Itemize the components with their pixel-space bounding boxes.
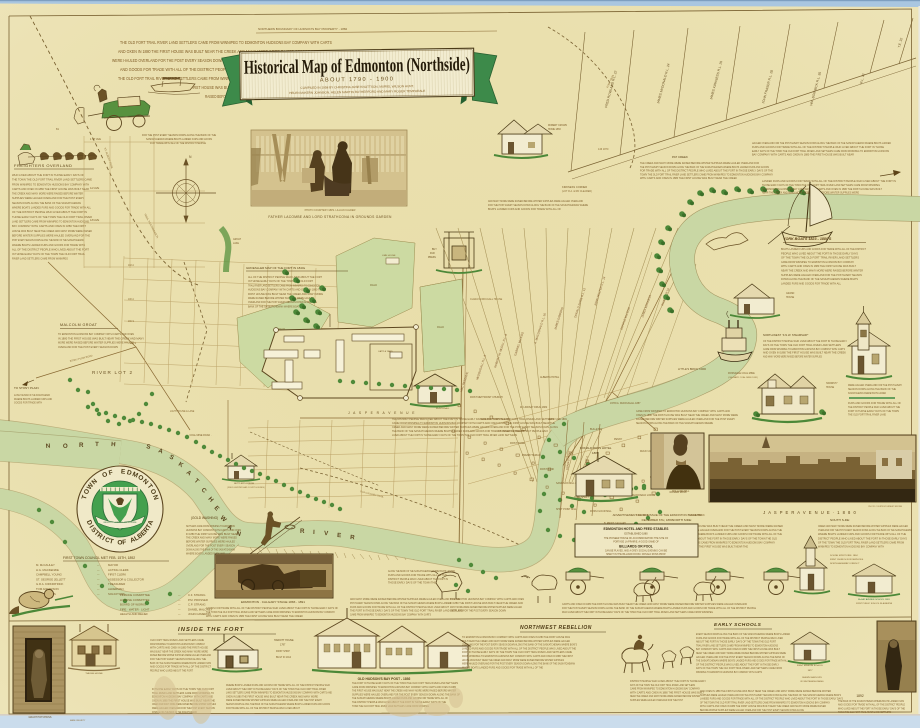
- svg-text:MALCOLM GROAT: MALCOLM GROAT: [60, 323, 98, 327]
- svg-text:NEAR THE CREEK AND MANY MORE W: NEAR THE CREEK AND MANY MORE WERE RAISED…: [696, 651, 786, 655]
- svg-text:WITH CARTS AND OXEN IN 1880 TH: WITH CARTS AND OXEN IN 1880 THE FIRST HO…: [640, 176, 737, 180]
- svg-text:BEFORE WINTER SUPPLIES WERE HA: BEFORE WINTER SUPPLIES WERE HAULED: [186, 540, 235, 544]
- svg-text:WHERE BOATS LANDED FURS AND GO: WHERE BOATS LANDED FURS AND GOODS FOR TR…: [12, 243, 85, 247]
- svg-text:KIRKNESS CORNER: KIRKNESS CORNER: [562, 185, 587, 189]
- svg-text:MAYOR: MAYOR: [108, 563, 118, 567]
- svg-text:(CALGARY COAL MINE 1881): (CALGARY COAL MINE 1881): [728, 376, 758, 379]
- svg-text:LICENSE COMMITTEE: LICENSE COMMITTEE: [120, 598, 150, 602]
- svg-text:ALONG THE BANK OF THE SASKATCH: ALONG THE BANK OF THE SASKATCHEWAN: [14, 393, 50, 397]
- svg-text:G.R.A. KIRKPATRICK: G.R.A. KIRKPATRICK: [36, 582, 64, 586]
- svg-text:TO EDMONTON HUDSONS BAY COMPAN: TO EDMONTON HUDSONS BAY COMPANY WITH CAR…: [462, 635, 570, 639]
- svg-text:FURS AND GOODS FOR TRADE WITH: FURS AND GOODS FOR TRADE WITH ALL OF THE…: [696, 636, 783, 640]
- svg-text:THE OLD FORT TRAIL RIVER LAND: THE OLD FORT TRAIL RIVER LAND: [848, 413, 886, 417]
- svg-text:SEASON DOWN ALONG THE BANK OF: SEASON DOWN ALONG THE BANK OF THE SASKAT…: [12, 201, 81, 205]
- svg-text:AND GOODS FOR TRADE WITH ALL O: AND GOODS FOR TRADE WITH ALL OF THE DIST…: [838, 704, 905, 707]
- svg-text:FROM WINNIPEG TO EDMONTON HUDS: FROM WINNIPEG TO EDMONTON HUDSONS BAY CO…: [12, 182, 89, 186]
- svg-text:NORTHWEST REBELLION: NORTHWEST REBELLION: [520, 625, 592, 631]
- svg-text:100 A: 100 A: [128, 298, 134, 301]
- svg-text:PRESBYTERIAN: PRESBYTERIAN: [522, 454, 541, 457]
- svg-text:FOR TRADE WITH ALL OF THE DIST: FOR TRADE WITH ALL OF THE DISTRICT PEOPL…: [226, 706, 300, 710]
- svg-text:CAME FROM WINNIPEG TO EDMONTON: CAME FROM WINNIPEG TO EDMONTON HUDSONS B…: [350, 613, 431, 617]
- svg-text:THE TOWN THE OLD FORT TRAIL RI: THE TOWN THE OLD FORT TRAIL RIVER LAND S…: [206, 610, 335, 614]
- svg-text:YORK BOATS 1823 - 1880'S: YORK BOATS 1823 - 1880'S: [783, 237, 832, 241]
- svg-text:ROBERT CROWN: ROBERT CROWN: [548, 125, 567, 127]
- svg-text:TREASURER: TREASURER: [108, 582, 125, 586]
- svg-text:HEALTH AND RELIEF: HEALTH AND RELIEF: [120, 612, 148, 616]
- svg-text:CAN BE PLAYED, AND A GREY SOCI: CAN BE PLAYED, AND A GREY SOCIAL EVENING…: [605, 550, 668, 553]
- svg-text:PRESS: PRESS: [428, 257, 436, 259]
- svg-text:CARTS AND OXEN IN 1880 THE FIR: CARTS AND OXEN IN 1880 THE FIRST HOUSE W…: [562, 602, 747, 606]
- svg-text:McDOUGALL: McDOUGALL: [436, 407, 450, 410]
- svg-text:BAY COMPANY WITH CARTS AND OXE: BAY COMPANY WITH CARTS AND OXEN IN 1880 …: [752, 153, 854, 157]
- svg-text:THE OLD FORT TRAIL RIVER LAND: THE OLD FORT TRAIL RIVER LAND SETTLERS C…: [120, 40, 332, 45]
- svg-text:AND GOODS FOR TRADE WITH ALL O: AND GOODS FOR TRADE WITH ALL OF THE DIST…: [150, 665, 211, 669]
- svg-text:BANK OF THE SASKATCHEWAN WHERE: BANK OF THE SASKATCHEWAN WHERE BOATS: [248, 304, 301, 308]
- svg-text:OF THE TOWN THE OLD FORT TRAIL: OF THE TOWN THE OLD FORT TRAIL RIVER LAN…: [700, 700, 830, 704]
- svg-text:FURS AND GOODS FOR TRADE WITH: FURS AND GOODS FOR TRADE WITH ALL OF THE…: [350, 605, 449, 609]
- svg-text:ASSESSOR & COLLECTOR: ASSESSOR & COLLECTOR: [108, 577, 144, 581]
- svg-text:FATHER LACOMBE AND LORD STRA: FATHER LACOMBE AND LORD STRATHCONA IN GR…: [268, 215, 392, 219]
- svg-text:BEFORE WINTER SUPPLIES WERE HA: BEFORE WINTER SUPPLIES WERE HAULED OVERL…: [12, 233, 90, 237]
- svg-text:EARLY SCHOOLS: EARLY SCHOOLS: [714, 622, 762, 628]
- svg-text:OF THE DISTRICT PEOPLE WHO LIV: OF THE DISTRICT PEOPLE WHO LIVED ABOUT T…: [12, 210, 87, 214]
- svg-text:IN 1880 THE FIRST HOUSE WAS BU: IN 1880 THE FIRST HOUSE WAS BUILT NEAR T…: [450, 601, 523, 605]
- svg-text:NORTH-WEST “K.N.W. STEAMSHIP”: NORTH-WEST “K.N.W. STEAMSHIP”: [763, 333, 808, 337]
- svg-text:THE DISTRICT PEOPLE WHO LIVED: THE DISTRICT PEOPLE WHO LIVED ABOUT THE: [848, 405, 900, 409]
- svg-text:J A S P E R A V E N U E ·: J A S P E R A V E N U E · 1 8 8 0: [763, 510, 856, 515]
- svg-text:PHOTO COURTESY ERNEST BROWN: PHOTO COURTESY ERNEST BROWN: [868, 506, 902, 508]
- svg-text:OLD HUDSON'S BAY POST - 1: OLD HUDSON'S BAY POST - 1892: [358, 677, 411, 681]
- svg-text:1/2 AVE: 1/2 AVE: [90, 186, 99, 190]
- svg-text:HOUSE WAS BUILT NEAR THE CREEK: HOUSE WAS BUILT NEAR THE CREEK AND MANY …: [12, 229, 92, 233]
- svg-text:W. LINDSAY DRUG 1882: W. LINDSAY DRUG 1882: [520, 406, 548, 409]
- svg-text:WHERE BOATS LANDED FURS AND GO: WHERE BOATS LANDED FURS AND GOODS FOR TR…: [12, 206, 91, 210]
- svg-text:THE SASKATCHEWAN WHERE BOATS L: THE SASKATCHEWAN WHERE BOATS LANDED FURS…: [696, 659, 788, 663]
- svg-text:EVERY SEASON DOWN ALONG THE BA: EVERY SEASON DOWN ALONG THE BANK OF THE …: [696, 632, 790, 636]
- svg-text:200 S: 200 S: [128, 321, 134, 323]
- svg-text:WITH CARTS AND OXEN IN 1880 TH: WITH CARTS AND OXEN IN 1880 THE FIRST HO…: [700, 704, 826, 708]
- svg-text:FURS AND GOODS FOR TRADE WITH: FURS AND GOODS FOR TRADE WITH ALL OF THE: [388, 573, 447, 577]
- svg-text:BILLIARDS OR POOL: BILLIARDS OR POOL: [619, 545, 653, 549]
- svg-text:CARTS AND OXEN IN 1880 THE FIR: CARTS AND OXEN IN 1880 THE FIRST HOUSE W…: [12, 187, 89, 191]
- svg-text:FOR TRADE WITH ALL OF THE DIST: FOR TRADE WITH ALL OF THE DISTRICT PEOPL…: [150, 141, 206, 145]
- svg-text:Historical Map of Edmonton (No: Historical Map of Edmonton (Northside): [244, 54, 470, 79]
- svg-text:FIRST HOME: FIRST HOME: [510, 442, 525, 445]
- svg-text:FOR THE POST EVERY SEASON DOWN: FOR THE POST EVERY SEASON DOWN ALONG THE: [150, 657, 206, 661]
- svg-text:DECEMBER 6TH, 1880: DECEMBER 6TH, 1880: [642, 518, 673, 522]
- svg-text:HARDISTY: HARDISTY: [826, 382, 838, 385]
- svg-text:CAME FROM WINNIPEG TO EDMONTON: CAME FROM WINNIPEG TO EDMONTON HUDSONS B…: [352, 685, 456, 689]
- svg-text:CLARA McDOUGALL HOUSE: CLARA McDOUGALL HOUSE: [470, 298, 503, 301]
- svg-text:FIRST MISSION SCHOOL: FIRST MISSION SCHOOL: [797, 665, 824, 667]
- svg-text:R: R: [79, 442, 84, 449]
- svg-text:TRAIL RIVER LAND SETTLERS CAME: TRAIL RIVER LAND SETTLERS CAME FROM WINN…: [696, 643, 778, 647]
- svg-text:FROM WINNIPEG TO EDMONTON HUDS: FROM WINNIPEG TO EDMONTON HUDSONS BAY CO…: [150, 642, 205, 646]
- svg-text:HARIOTT HOUSE: HARIOTT HOUSE: [274, 639, 294, 642]
- svg-text:M. McCAULEY: M. McCAULEY: [36, 563, 55, 567]
- svg-text:BAY COMPANY WITH CARTS AND OXE: BAY COMPANY WITH CARTS AND OXEN IN 1880 …: [12, 224, 86, 228]
- svg-text:THE FIRST HOUSE WAS BUILT NEAR: THE FIRST HOUSE WAS BUILT NEAR THE CREEK…: [352, 689, 456, 693]
- svg-text:DISTRICT PEOPLE WHO LIVED ABOU: DISTRICT PEOPLE WHO LIVED ABOUT THE FORT…: [630, 679, 706, 683]
- svg-text:GROAT: GROAT: [233, 238, 242, 241]
- svg-text:C.P. STRANG: C.P. STRANG: [188, 603, 206, 607]
- svg-text:SPENT IN THE BILLIARD ROOM.: SPENT IN THE BILLIARD ROOM. DONALD ROSS …: [606, 553, 666, 556]
- svg-text:OVERLAND FOR THE POST EVERY SE: OVERLAND FOR THE POST EVERY SEASON DOWN: [58, 345, 118, 349]
- svg-text:HOUSE: HOUSE: [786, 297, 795, 299]
- svg-text:LIVED ABOUT THE FORT IN THOSE: LIVED ABOUT THE FORT IN THOSE EARLY DAYS…: [392, 433, 517, 437]
- svg-text:1/8 AVE: 1/8 AVE: [90, 218, 99, 222]
- svg-text:DAYS OF THE TOWN THE OLD FORT: DAYS OF THE TOWN THE OLD FORT TRAIL RIVE…: [763, 343, 841, 347]
- svg-text:THE FORT IN THOSE EARLY DAYS O: THE FORT IN THOSE EARLY DAYS OF THE TOWN…: [350, 609, 463, 613]
- svg-text:WERE HAULED OVERLAND FOR THE P: WERE HAULED OVERLAND FOR THE POST EVERY …: [462, 662, 575, 666]
- svg-text:HAULED OVERLAND FOR THE POST E: HAULED OVERLAND FOR THE POST EVERY SEASO…: [696, 655, 785, 659]
- svg-text:NEAR THE CREEK AND MANY MORE W: NEAR THE CREEK AND MANY MORE WERE RAISED…: [630, 694, 700, 698]
- svg-text:1892: 1892: [856, 694, 864, 698]
- svg-text:NORTH ASSEMBLY KIRKS IT: NORTH ASSEMBLY KIRKS IT: [830, 562, 860, 565]
- svg-text:ROSSDALE COAL MINE: ROSSDALE COAL MINE: [728, 372, 755, 375]
- svg-text:PEOPLE WHO LIVED ABOUT THE FOR: PEOPLE WHO LIVED ABOUT THE FORT: [150, 668, 193, 672]
- svg-text:SOUTH S-DE:: SOUTH S-DE:: [830, 518, 850, 522]
- svg-text:RAISED BEFORE WINTER SUPPLIES: RAISED BEFORE WINTER SUPPLIES WERE HAULE…: [150, 653, 211, 657]
- svg-text:WERE RAISED BEFORE WINTER SUPP: WERE RAISED BEFORE WINTER SUPPLIES WERE …: [226, 698, 322, 702]
- svg-text:BULLETIN: BULLETIN: [590, 428, 602, 431]
- svg-text:HOME 1883: HOME 1883: [548, 129, 561, 131]
- svg-text:1797: 1797: [280, 644, 286, 647]
- svg-text:MANY MORE WERE RAISED BEFORE W: MANY MORE WERE RAISED BEFORE WINTER SUPP…: [450, 605, 522, 609]
- svg-text:LANDED FURS AND GOODS FOR TRAD: LANDED FURS AND GOODS FOR TRADE WITH ALL…: [700, 697, 843, 701]
- svg-text:ADVERTISEMENT IN NO.1 ISSUE OF: ADVERTISEMENT IN NO.1 ISSUE OF THE EDMON…: [613, 513, 702, 517]
- svg-text:(FIELD HUNTER HAD COURT HOUSES: (FIELD HUNTER HAD COURT HOUSES): [227, 486, 265, 489]
- svg-text:LITTLE'S BRICK YARD: LITTLE'S BRICK YARD: [678, 367, 706, 371]
- svg-text:ALONG THE BANK OF THE SASKATCH: ALONG THE BANK OF THE SASKATCHEWAN WHERE…: [388, 569, 455, 573]
- svg-text:PORTAGE LA PRAIRIE. A GOOD GA: PORTAGE LA PRAIRIE. A GOOD GAME OF: [613, 541, 659, 544]
- svg-text:HUDSONS BAY COMPANY WITH CARTS: HUDSONS BAY COMPANY WITH CARTS AND OXEN: [186, 528, 241, 532]
- svg-text:WHO LIVED ABOUT THE FORT IN TH: WHO LIVED ABOUT THE FORT IN THOSE EARLY …: [562, 610, 713, 614]
- svg-text:1877: 1877: [808, 670, 814, 672]
- svg-text:OF THE DISTRICT PEOPLE WHO LIV: OF THE DISTRICT PEOPLE WHO LIVED ABOUT T…: [696, 662, 779, 666]
- svg-text:FROM WINNIPEG TO EDMONTON HUDS: FROM WINNIPEG TO EDMONTON HUDSONS BAY CO…: [462, 654, 573, 658]
- svg-text:FIRST METHODIST CHURCH: FIRST METHODIST CHURCH: [470, 396, 503, 399]
- svg-text:SETTLER'S HOUSE: SETTLER'S HOUSE: [234, 483, 255, 485]
- svg-text:CAME FROM WINNIPEG TO EDMONTON: CAME FROM WINNIPEG TO EDMONTON HUDSONS B…: [630, 687, 700, 691]
- svg-text:SETTLERS CAME FROM WINNIPEG TO: SETTLERS CAME FROM WINNIPEG TO EDMONTON: [186, 524, 235, 528]
- svg-text:BUILT NEAR THE CREEK AND MANY: BUILT NEAR THE CREEK AND MANY MORE WERE …: [462, 639, 570, 643]
- svg-text:INSIDE THE FORT: INSIDE THE FORT: [178, 627, 244, 633]
- svg-text:HOUSE: HOUSE: [826, 387, 835, 389]
- svg-text:FIRST BANK: FIRST BANK: [540, 468, 554, 471]
- svg-text:BANK OF THE SASKATCHEWAN WHERE: BANK OF THE SASKATCHEWAN WHERE BOATS LAN…: [150, 661, 211, 665]
- svg-text:BUY: BUY: [432, 249, 437, 251]
- svg-text:OVERLAND FOR THE POST EVERY SE: OVERLAND FOR THE POST EVERY SEASON DOWN …: [462, 643, 577, 647]
- svg-text:IN THOSE EARLY DAYS OF THE TOW: IN THOSE EARLY DAYS OF THE TOWN THE OLD …: [12, 252, 85, 256]
- svg-text:WERE HAULED OVERLAND FOR THE P: WERE HAULED OVERLAND FOR THE POST EVERY: [848, 383, 902, 387]
- svg-text:FIRST SHOP: FIRST SHOP: [276, 651, 290, 653]
- svg-text:TOWN THE OLD FORT TRAIL RIVER: TOWN THE OLD FORT TRAIL RIVER LAND SETTL…: [838, 711, 891, 714]
- svg-text:AND OXEN IN 1880 THE FIRST HOU: AND OXEN IN 1880 THE FIRST HOUSE WAS BUI…: [700, 689, 831, 693]
- svg-text:EDMONTON · CALGARY STAGE 18: EDMONTON · CALGARY STAGE 1883 - 1891: [241, 600, 305, 604]
- svg-text:DOWN ALONG THE BANK OF THE SAS: DOWN ALONG THE BANK OF THE SASKATCHEWAN: [186, 547, 235, 551]
- svg-text:SASKATCHEWAN WHERE BOATS LANDE: SASKATCHEWAN WHERE BOATS LANDED: [848, 391, 886, 395]
- svg-text:ABOUT 1790 - 1900: ABOUT 1790 - 1900: [320, 76, 394, 83]
- svg-text:GRANT HOTCHKISS: GRANT HOTCHKISS: [29, 716, 52, 719]
- svg-text:TO STONY PLAIN: TO STONY PLAIN: [14, 386, 39, 390]
- svg-text:THE CREEK AND MANY MORE WERE R: THE CREEK AND MANY MORE WERE RAISED: [186, 536, 237, 540]
- svg-text:PHOTO COURTESY MRS. LILLIAN CA: PHOTO COURTESY MRS. LILLIAN CALDER: [305, 209, 356, 212]
- svg-text:WITH CARTS AND OXEN IN 1880 TH: WITH CARTS AND OXEN IN 1880 THE FIRST HO…: [150, 646, 208, 650]
- svg-text:GOODS FOR TRADE WITH ALL OF TH: GOODS FOR TRADE WITH ALL OF THE DISTRICT…: [206, 606, 338, 610]
- svg-text:THOSE EARLY DAYS OF THE TOWN T: THOSE EARLY DAYS OF THE TOWN THE OLD FOR…: [12, 215, 92, 219]
- svg-text:RIVER LOT 2: RIVER LOT 2: [92, 370, 133, 375]
- svg-text:BAY COMPANY WITH CARTS AND OXE: BAY COMPANY WITH CARTS AND OXEN IN 1880 …: [696, 647, 780, 651]
- svg-text:SUPPLIES WERE HAULED OVERLAND: SUPPLIES WERE HAULED OVERLAND FOR THE PO…: [630, 698, 683, 702]
- svg-text:WHERE BOATS LANDED FURS AND: WHERE BOATS LANDED FURS AND: [14, 397, 52, 401]
- svg-text:DONALD ROSS: DONALD ROSS: [670, 491, 687, 494]
- svg-text:FURS AND GOODS FOR TRADE WITH: FURS AND GOODS FOR TRADE WITH ALL OF: [848, 401, 901, 405]
- svg-text:THE BIG HOUSE: THE BIG HOUSE: [85, 673, 103, 675]
- svg-text:FIELD: FIELD: [370, 284, 377, 287]
- svg-text:AND MANY MORE WERE RAISED BEFO: AND MANY MORE WERE RAISED BEFORE WINTER …: [763, 355, 822, 359]
- svg-text:146 1870: 146 1870: [598, 148, 609, 151]
- svg-text:NORTHERN BOUNDARY OF HUDSON: NORTHERN BOUNDARY OF HUDSON'S BAY PROPER…: [258, 27, 348, 31]
- svg-text:LAKE: LAKE: [233, 242, 239, 245]
- svg-text:ACTING CLERK: ACTING CLERK: [108, 568, 129, 572]
- svg-text:LIVED ABOUT THE FORT IN THOSE: LIVED ABOUT THE FORT IN THOSE EARLY DAYS…: [226, 687, 326, 691]
- svg-text:LAND SETTLERS CAME FROM WINNIP: LAND SETTLERS CAME FROM WINNIPEG TO EDMO…: [226, 691, 332, 695]
- svg-text:THE TOWN THE OLD FORT TRAIL RI: THE TOWN THE OLD FORT TRAIL RIVER LAND S…: [12, 178, 92, 182]
- svg-text:1 ST AVE: 1 ST AVE: [90, 137, 101, 141]
- svg-text:INDUSTRY · ENERGY · ENTERPRISE: INDUSTRY · ENERGY · ENTERPRISE: [104, 522, 138, 524]
- svg-text:ALDERMAN: ALDERMAN: [108, 587, 124, 591]
- svg-text:IN 1880 THE FIRST HOUSE WAS BU: IN 1880 THE FIRST HOUSE WAS BUILT NEAR: [186, 532, 238, 536]
- svg-text:FOR TRADE WITH ALL OF THE DIST: FOR TRADE WITH ALL OF THE DISTRICT PEOPL…: [640, 169, 773, 173]
- svg-text:OVERLAND FOR THE POST EVERY SE: OVERLAND FOR THE POST EVERY SEASON: [186, 544, 235, 548]
- svg-text:FIRST TOWN COUNCIL MET FEB. 15: FIRST TOWN COUNCIL MET FEB. 15TH, 1892: [63, 556, 135, 560]
- svg-text:THE BANK OF THE SASKATCHEWAN W: THE BANK OF THE SASKATCHEWAN WHERE BOATS…: [838, 700, 904, 703]
- svg-text:WHO LIVED ABOUT THE FORT IN TH: WHO LIVED ABOUT THE FORT IN THOSE EARLY …: [12, 173, 84, 177]
- svg-text:ROSS FLOUR MILL: ROSS FLOUR MILL: [590, 510, 612, 513]
- svg-text:FUR: FUR: [430, 253, 435, 255]
- svg-text:PAT CREEK: PAT CREEK: [672, 155, 688, 159]
- svg-text:NORTH SIDE:: NORTH SIDE:: [672, 518, 692, 522]
- svg-text:THE PIONEER HOUSE OF ACCOMMODA: THE PIONEER HOUSE OF ACCOMMODATION THE S…: [604, 537, 669, 540]
- svg-text:DAYS OF THE TOWN THE OLD FORT: DAYS OF THE TOWN THE OLD FORT TRAIL RIVE…: [630, 683, 695, 687]
- svg-text:POST EVERY SEASON DOWN ALONG T: POST EVERY SEASON DOWN ALONG THE BANK OF…: [12, 238, 84, 242]
- svg-text:THE POST EVERY SEASON DOWN ALO: THE POST EVERY SEASON DOWN ALONG THE BAN…: [640, 165, 769, 169]
- svg-text:RIVER LAND SETTLERS CAME FROM: RIVER LAND SETTLERS CAME FROM WINNIPEG: [12, 257, 69, 261]
- svg-text:F: F: [122, 539, 127, 546]
- svg-text:FOR THE POST EVERY SEASON DOWN: FOR THE POST EVERY SEASON DOWN ALONG THE…: [562, 606, 756, 610]
- svg-text:SHEWN SHEIN SITE: SHEWN SHEIN SITE: [802, 677, 822, 679]
- svg-text:LIME HOUSE: LIME HOUSE: [382, 255, 396, 257]
- svg-text:MADE CELERITY: MADE CELERITY: [70, 719, 86, 722]
- svg-text:McKAY AVENUE SCHOOL 1881: McKAY AVENUE SCHOOL 1881: [858, 598, 890, 601]
- svg-text:WHERE BOATS LANDED FURS AND GO: WHERE BOATS LANDED FURS AND GOODS FOR TR…: [462, 665, 543, 669]
- svg-text:FIRST CHURCH FOR SERVICES: FIRST CHURCH FOR SERVICES: [830, 559, 864, 561]
- svg-text:BOARD OF WORKS: BOARD OF WORKS: [120, 603, 146, 607]
- svg-text:JOHN A. McDOUGALL 1887: JOHN A. McDOUGALL 1887: [610, 402, 641, 405]
- svg-text:SUPPLIES WERE HAULED OVERLAND: SUPPLIES WERE HAULED OVERLAND FOR THE PO…: [12, 196, 84, 200]
- svg-text:SHANNON FAST: SHANNON FAST: [163, 77, 181, 80]
- svg-text:160 S: 160 S: [130, 343, 136, 345]
- svg-text:DISTRICT PEOPLE WHO LIVED ABOU: DISTRICT PEOPLE WHO LIVED ABOUT THE FORT…: [388, 577, 448, 581]
- svg-text:SEASON DOWN ALONG THE BANK OF: SEASON DOWN ALONG THE BANK OF THE SASKAT…: [226, 702, 330, 706]
- svg-text:FORT IN THOSE EARLY DAYS OF TH: FORT IN THOSE EARLY DAYS OF THE TOWN THE…: [462, 650, 572, 654]
- svg-text:SUPPLIES WERE HAULED OVERLAND: SUPPLIES WERE HAULED OVERLAND FOR THE PO…: [700, 693, 841, 697]
- svg-text:ALBERTA HOTEL: ALBERTA HOTEL: [540, 376, 560, 379]
- svg-text:POST EVERY SEASON DOWN ALONG T: POST EVERY SEASON DOWN ALONG THE BANK OF…: [350, 601, 451, 605]
- svg-text:THE FORT IN THOSE EARLY DAYS O: THE FORT IN THOSE EARLY DAYS OF THE TOWN…: [352, 681, 458, 685]
- svg-text:R: R: [300, 528, 305, 535]
- svg-text:OF THE DISTRICT PEOPLE WHO LIV: OF THE DISTRICT PEOPLE WHO LIVED ABOUT T…: [763, 339, 847, 343]
- svg-text:FIRE · WATER · LIGHT: FIRE · WATER · LIGHT: [120, 607, 150, 611]
- svg-text:O: O: [63, 443, 68, 450]
- svg-text:TO EDMONTON HUDSONS BAY COMPAN: TO EDMONTON HUDSONS BAY COMPANY WITH CAR…: [450, 597, 524, 601]
- svg-text:WAS BUILT NEAR THE CREEK AND M: WAS BUILT NEAR THE CREEK AND MANY MORE W…: [150, 649, 208, 653]
- svg-text:WHO LIVED ABOUT THE FORT IN TH: WHO LIVED ABOUT THE FORT IN THOSE EARLY …: [838, 707, 905, 710]
- svg-text:AND OXEN IN 1880 THE FIRST HOU: AND OXEN IN 1880 THE FIRST HOUSE WAS BUI…: [763, 351, 846, 355]
- svg-text:LAND SETTLERS CAME FROM WINNIP: LAND SETTLERS CAME FROM WINNIPEG TO EDMO…: [12, 220, 89, 224]
- svg-text:P.M. PROSSER: P.M. PROSSER: [188, 598, 208, 602]
- svg-text:THE CREEK AND MANY MORE WERE R: THE CREEK AND MANY MORE WERE RAISED BEFO…: [640, 161, 759, 165]
- svg-text:EDMONTON HOTEL AND FEED STABLE: EDMONTON HOTEL AND FEED STABLES: [604, 527, 670, 531]
- svg-text:ESTABLISHED 1880: ESTABLISHED 1880: [624, 533, 648, 536]
- svg-text:ALL OF THE DISTRICT PEOPLE WHO: ALL OF THE DISTRICT PEOPLE WHO LIVED ABO…: [12, 247, 89, 251]
- svg-text:FORT IN THOSE EARLY DAYS OF TH: FORT IN THOSE EARLY DAYS OF THE TOWN: [848, 409, 899, 413]
- svg-text:(GOLD WASHING): (GOLD WASHING): [191, 516, 218, 520]
- svg-text:FREIGHTERS OVERLAND: FREIGHTERS OVERLAND: [14, 163, 72, 168]
- svg-text:FINANCE COMMITTEE: FINANCE COMMITTEE: [120, 593, 150, 597]
- svg-text:(LOT R.A. & RD CLEARED): (LOT R.A. & RD CLEARED): [562, 190, 592, 193]
- svg-text:LANDED FURS AND GOODS FOR TRAD: LANDED FURS AND GOODS FOR TRADE WITH ALL…: [462, 646, 576, 650]
- svg-text:DOLINE SPIRIT KIRK. 1884: DOLINE SPIRIT KIRK. 1884: [830, 555, 858, 557]
- svg-text:CAMPBELL YOUNG: CAMPBELL YOUNG: [36, 573, 62, 577]
- svg-text:OLD FORT TRAIL RIVER LAND SETT: OLD FORT TRAIL RIVER LAND SETTLERS CAME: [150, 638, 204, 642]
- svg-text:BEFORE WINTER SUPPLIES WERE HA: BEFORE WINTER SUPPLIES WERE HAULED OVERL…: [700, 708, 804, 712]
- svg-text:E: E: [337, 532, 342, 539]
- svg-text:SHOT POINT MILL: SHOT POINT MILL: [556, 508, 577, 511]
- svg-text:FIRST PUBLIC SCHOOL IN ALBERTA: FIRST PUBLIC SCHOOL IN ALBERTA: [856, 602, 892, 605]
- svg-text:WHERE BOATS LANDED FURS AND GO: WHERE BOATS LANDED FURS AND GOODS FOR TR…: [226, 683, 330, 687]
- svg-text:OF WHITEHEISH PAGEL: OF WHITEHEISH PAGEL: [800, 680, 825, 683]
- svg-text:102 A: 102 A: [128, 264, 134, 267]
- svg-text:ST. GEORGE JELLETT: ST. GEORGE JELLETT: [36, 577, 66, 581]
- svg-text:FIELD: FIELD: [437, 326, 444, 329]
- svg-text:DAYS OF THE TOWN THE OLD FORT: DAYS OF THE TOWN THE OLD FORT TRAIL RIVE…: [696, 666, 782, 670]
- svg-text:ABOUT THE FORT IN THOSE EARLY: ABOUT THE FORT IN THOSE EARLY DAYS OF TH…: [696, 640, 776, 644]
- svg-text:BUILT IN 1914: BUILT IN 1914: [276, 657, 292, 659]
- svg-text:WITH CARTS AND OXEN IN 1880 TH: WITH CARTS AND OXEN IN 1880 THE FIRST HO…: [206, 614, 303, 618]
- svg-text:CAME FROM WINNIPEG TO EDMONTON: CAME FROM WINNIPEG TO EDMONTON HUDSONS B…: [763, 347, 845, 351]
- svg-text:WINNIPEG TO EDMONTON HUDSONS B: WINNIPEG TO EDMONTON HUDSONS BAY COMPANY…: [818, 545, 884, 549]
- svg-text:SEASON DOWN ALONG THE BANK OF: SEASON DOWN ALONG THE BANK OF THE: [848, 387, 896, 391]
- svg-text:AND MANY MORE WERE RAISED BEFO: AND MANY MORE WERE RAISED BEFORE WINTER …: [350, 597, 460, 601]
- svg-text:THE CREEK AND MANY MORE WERE R: THE CREEK AND MANY MORE WERE RAISED BEFO…: [12, 192, 83, 196]
- svg-text:THOSE EARLY DAYS OF THE TOWN T: THOSE EARLY DAYS OF THE TOWN THE: [388, 581, 436, 585]
- svg-text:DONALD ROSS HOTEL: DONALD ROSS HOTEL: [580, 446, 612, 450]
- svg-text:OVERLAND FOR THE POST EVERY SE: OVERLAND FOR THE POST EVERY SEASON DOWN: [450, 609, 506, 613]
- svg-text:T: T: [95, 441, 99, 448]
- svg-text:WINNIPEG TO EDMONTON HUDSONS B: WINNIPEG TO EDMONTON HUDSONS BAY COMPANY…: [696, 670, 762, 674]
- svg-text:LANDED FURS AND GOODS FOR TRAD: LANDED FURS AND GOODS FOR TRADE WITH ALL: [781, 281, 841, 285]
- svg-text:LIGHT HOUSE & LANE: LIGHT HOUSE & LANE: [170, 410, 195, 413]
- svg-text:GOODS FOR TRADE WITH: GOODS FOR TRADE WITH: [14, 401, 42, 405]
- svg-text:GRAND: GRAND: [786, 292, 795, 295]
- svg-text:BOATS LANDED FURS AND GOODS FO: BOATS LANDED FURS AND GOODS FOR TRADE WI…: [488, 207, 561, 211]
- svg-text:GROESLLER MAP OF THE FORT IN 1: GROESLLER MAP OF THE FORT IN 1840s: [246, 266, 306, 270]
- svg-text:H.G. MACKENZIE: H.G. MACKENZIE: [36, 568, 59, 572]
- svg-text:HOUSE WAS BUILT NEAR THE CREEK: HOUSE WAS BUILT NEAR THE CREEK AND MANY …: [462, 658, 564, 662]
- svg-text:FIRST CLERK: FIRST CLERK: [108, 573, 126, 577]
- svg-text:SEASON DOWN ALONG THE BANK OF: SEASON DOWN ALONG THE BANK OF THE SASKAT…: [636, 421, 713, 425]
- svg-text:WITH CARTS AND OXEN IN 1880 TH: WITH CARTS AND OXEN IN 1880 THE FIRST HO…: [630, 690, 704, 694]
- svg-text:TOWN THE OLD FORT TRAIL RIVER: TOWN THE OLD FORT TRAIL RIVER LAND SETTL…: [640, 172, 773, 176]
- svg-text:· COAL MINE ROAD ·: · COAL MINE ROAD ·: [188, 434, 212, 437]
- svg-text:J A S P E R A V E N U E: J A S P E R A V E N U E: [348, 411, 416, 415]
- svg-text:C.F. STRANG: C.F. STRANG: [188, 593, 205, 597]
- svg-text:OXEN IN 1880 THE FIRST HOUSE W: OXEN IN 1880 THE FIRST HOUSE WAS BUILT N…: [226, 694, 318, 698]
- svg-text:PENNY: PENNY: [614, 438, 623, 441]
